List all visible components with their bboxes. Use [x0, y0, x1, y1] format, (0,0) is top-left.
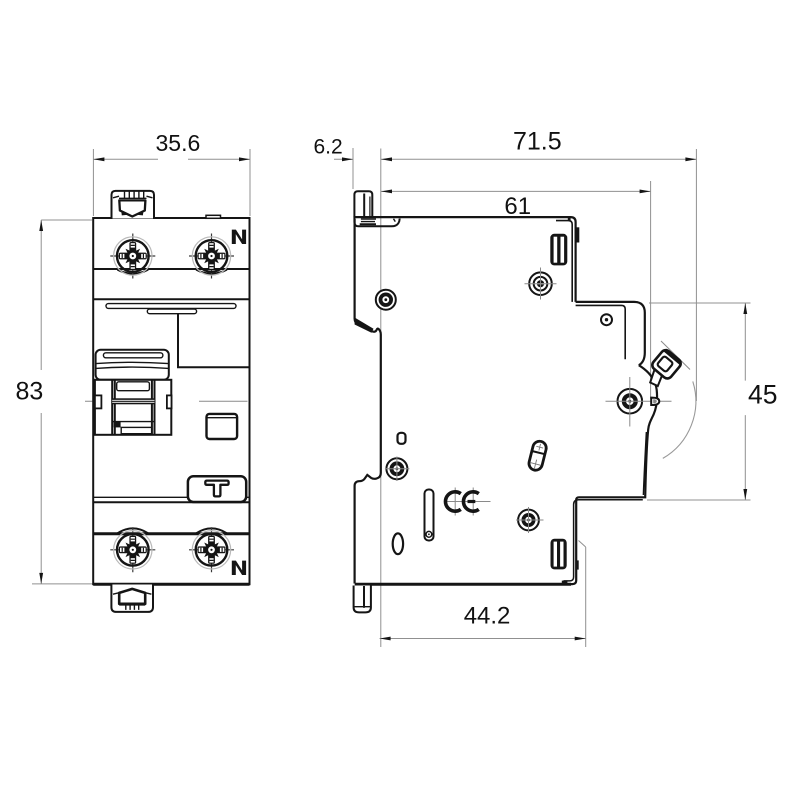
svg-text:44.2: 44.2	[464, 603, 511, 630]
svg-text:71.5: 71.5	[513, 128, 562, 156]
svg-text:6.2: 6.2	[314, 136, 343, 159]
svg-text:83: 83	[16, 378, 44, 406]
svg-text:45: 45	[748, 379, 777, 409]
svg-text:35.6: 35.6	[156, 130, 201, 156]
svg-text:61: 61	[504, 193, 531, 220]
